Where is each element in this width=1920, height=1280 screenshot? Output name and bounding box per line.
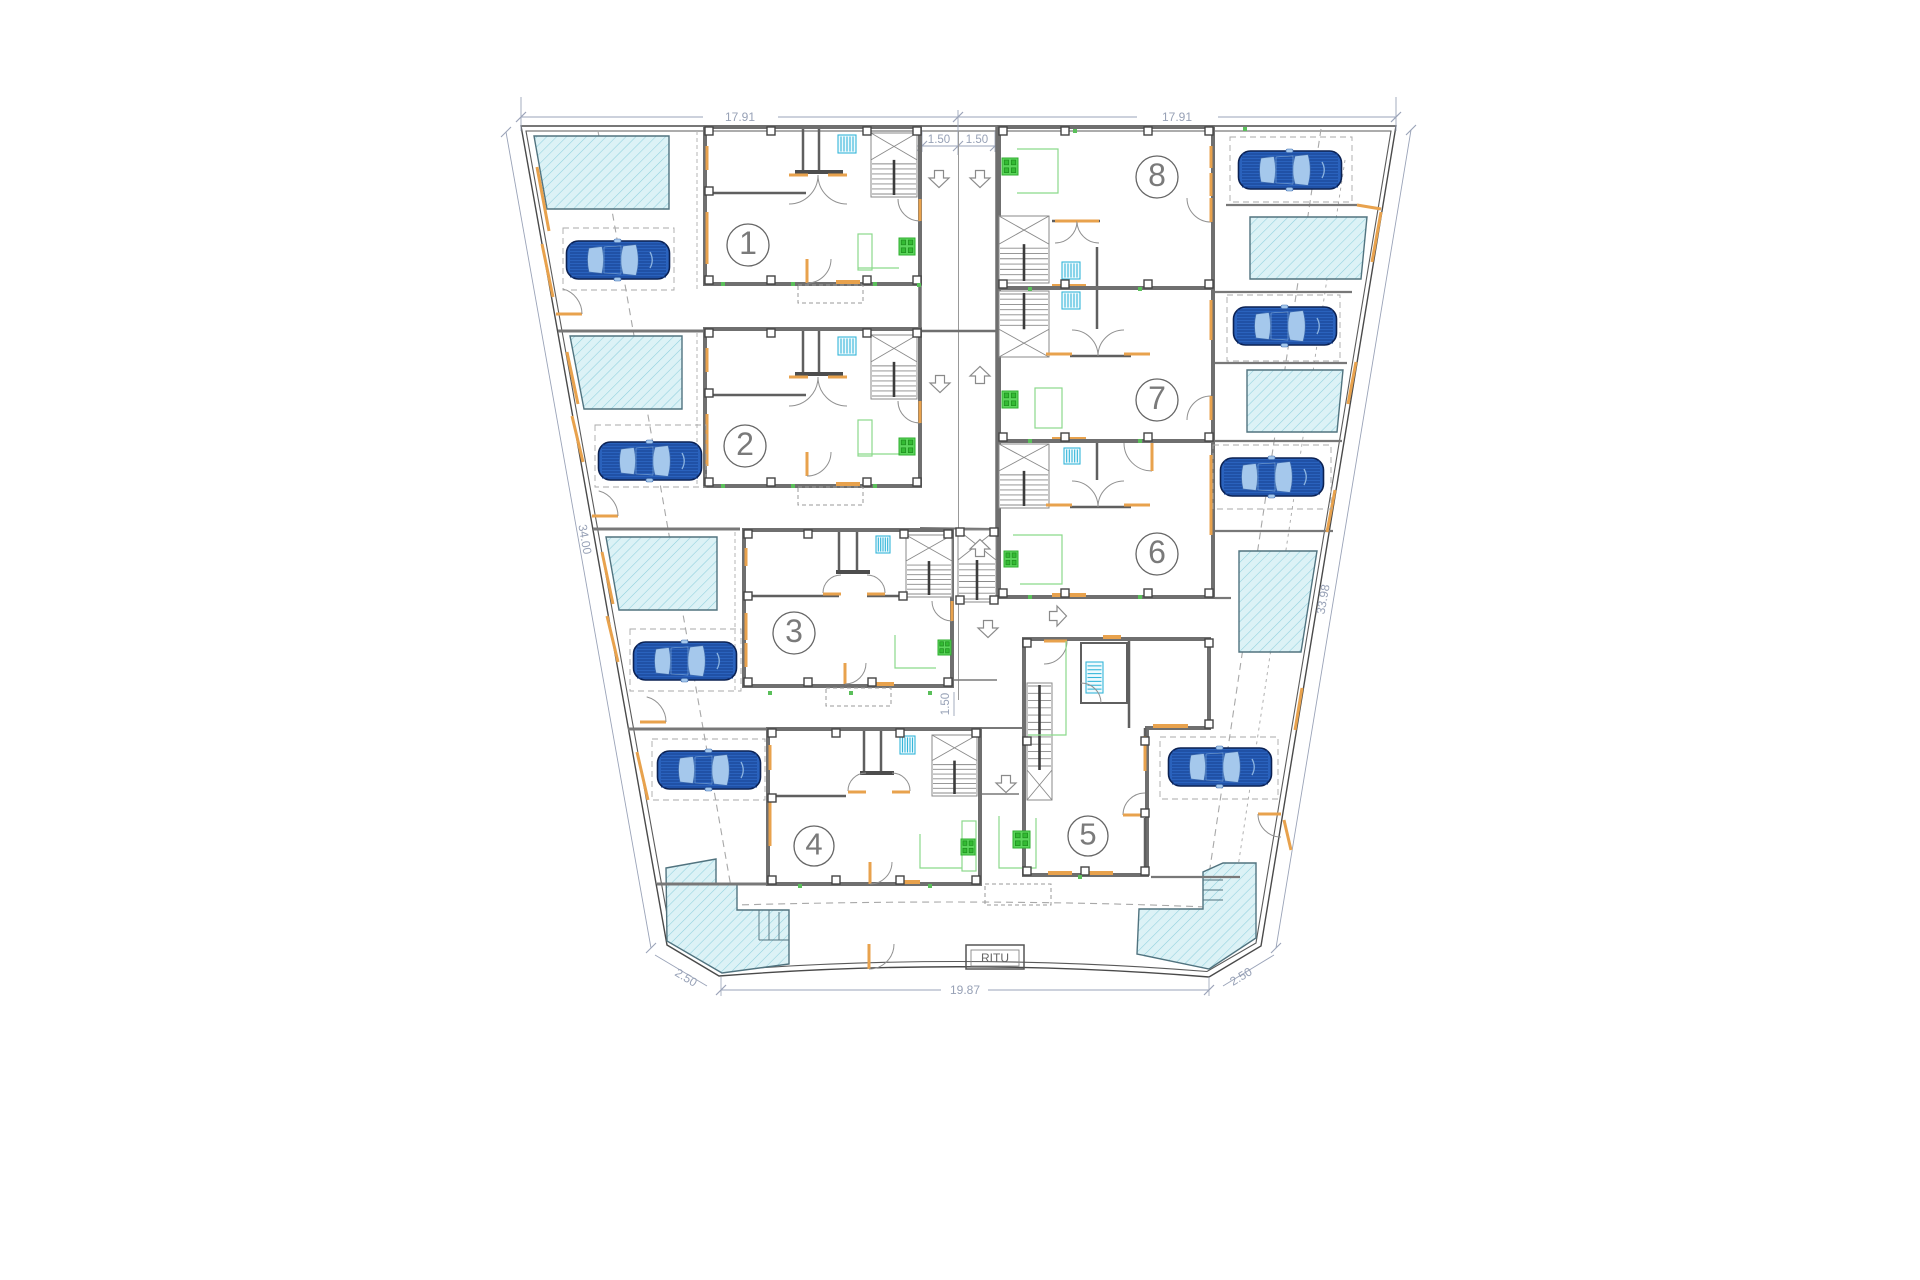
svg-text:7: 7 bbox=[1148, 380, 1166, 416]
svg-text:1.50: 1.50 bbox=[966, 134, 988, 146]
svg-text:17.91: 17.91 bbox=[1162, 110, 1192, 124]
svg-text:19.87: 19.87 bbox=[950, 983, 980, 997]
svg-text:1.50: 1.50 bbox=[928, 134, 950, 146]
svg-text:4: 4 bbox=[805, 826, 822, 861]
svg-text:RITU: RITU bbox=[981, 951, 1009, 965]
svg-text:3: 3 bbox=[785, 613, 803, 649]
svg-text:1: 1 bbox=[739, 225, 757, 261]
svg-text:6: 6 bbox=[1148, 534, 1166, 570]
svg-text:5: 5 bbox=[1079, 816, 1096, 851]
svg-text:17.91: 17.91 bbox=[725, 110, 755, 124]
svg-text:2: 2 bbox=[736, 426, 754, 462]
svg-text:1.50: 1.50 bbox=[940, 693, 952, 715]
svg-text:8: 8 bbox=[1148, 157, 1166, 193]
